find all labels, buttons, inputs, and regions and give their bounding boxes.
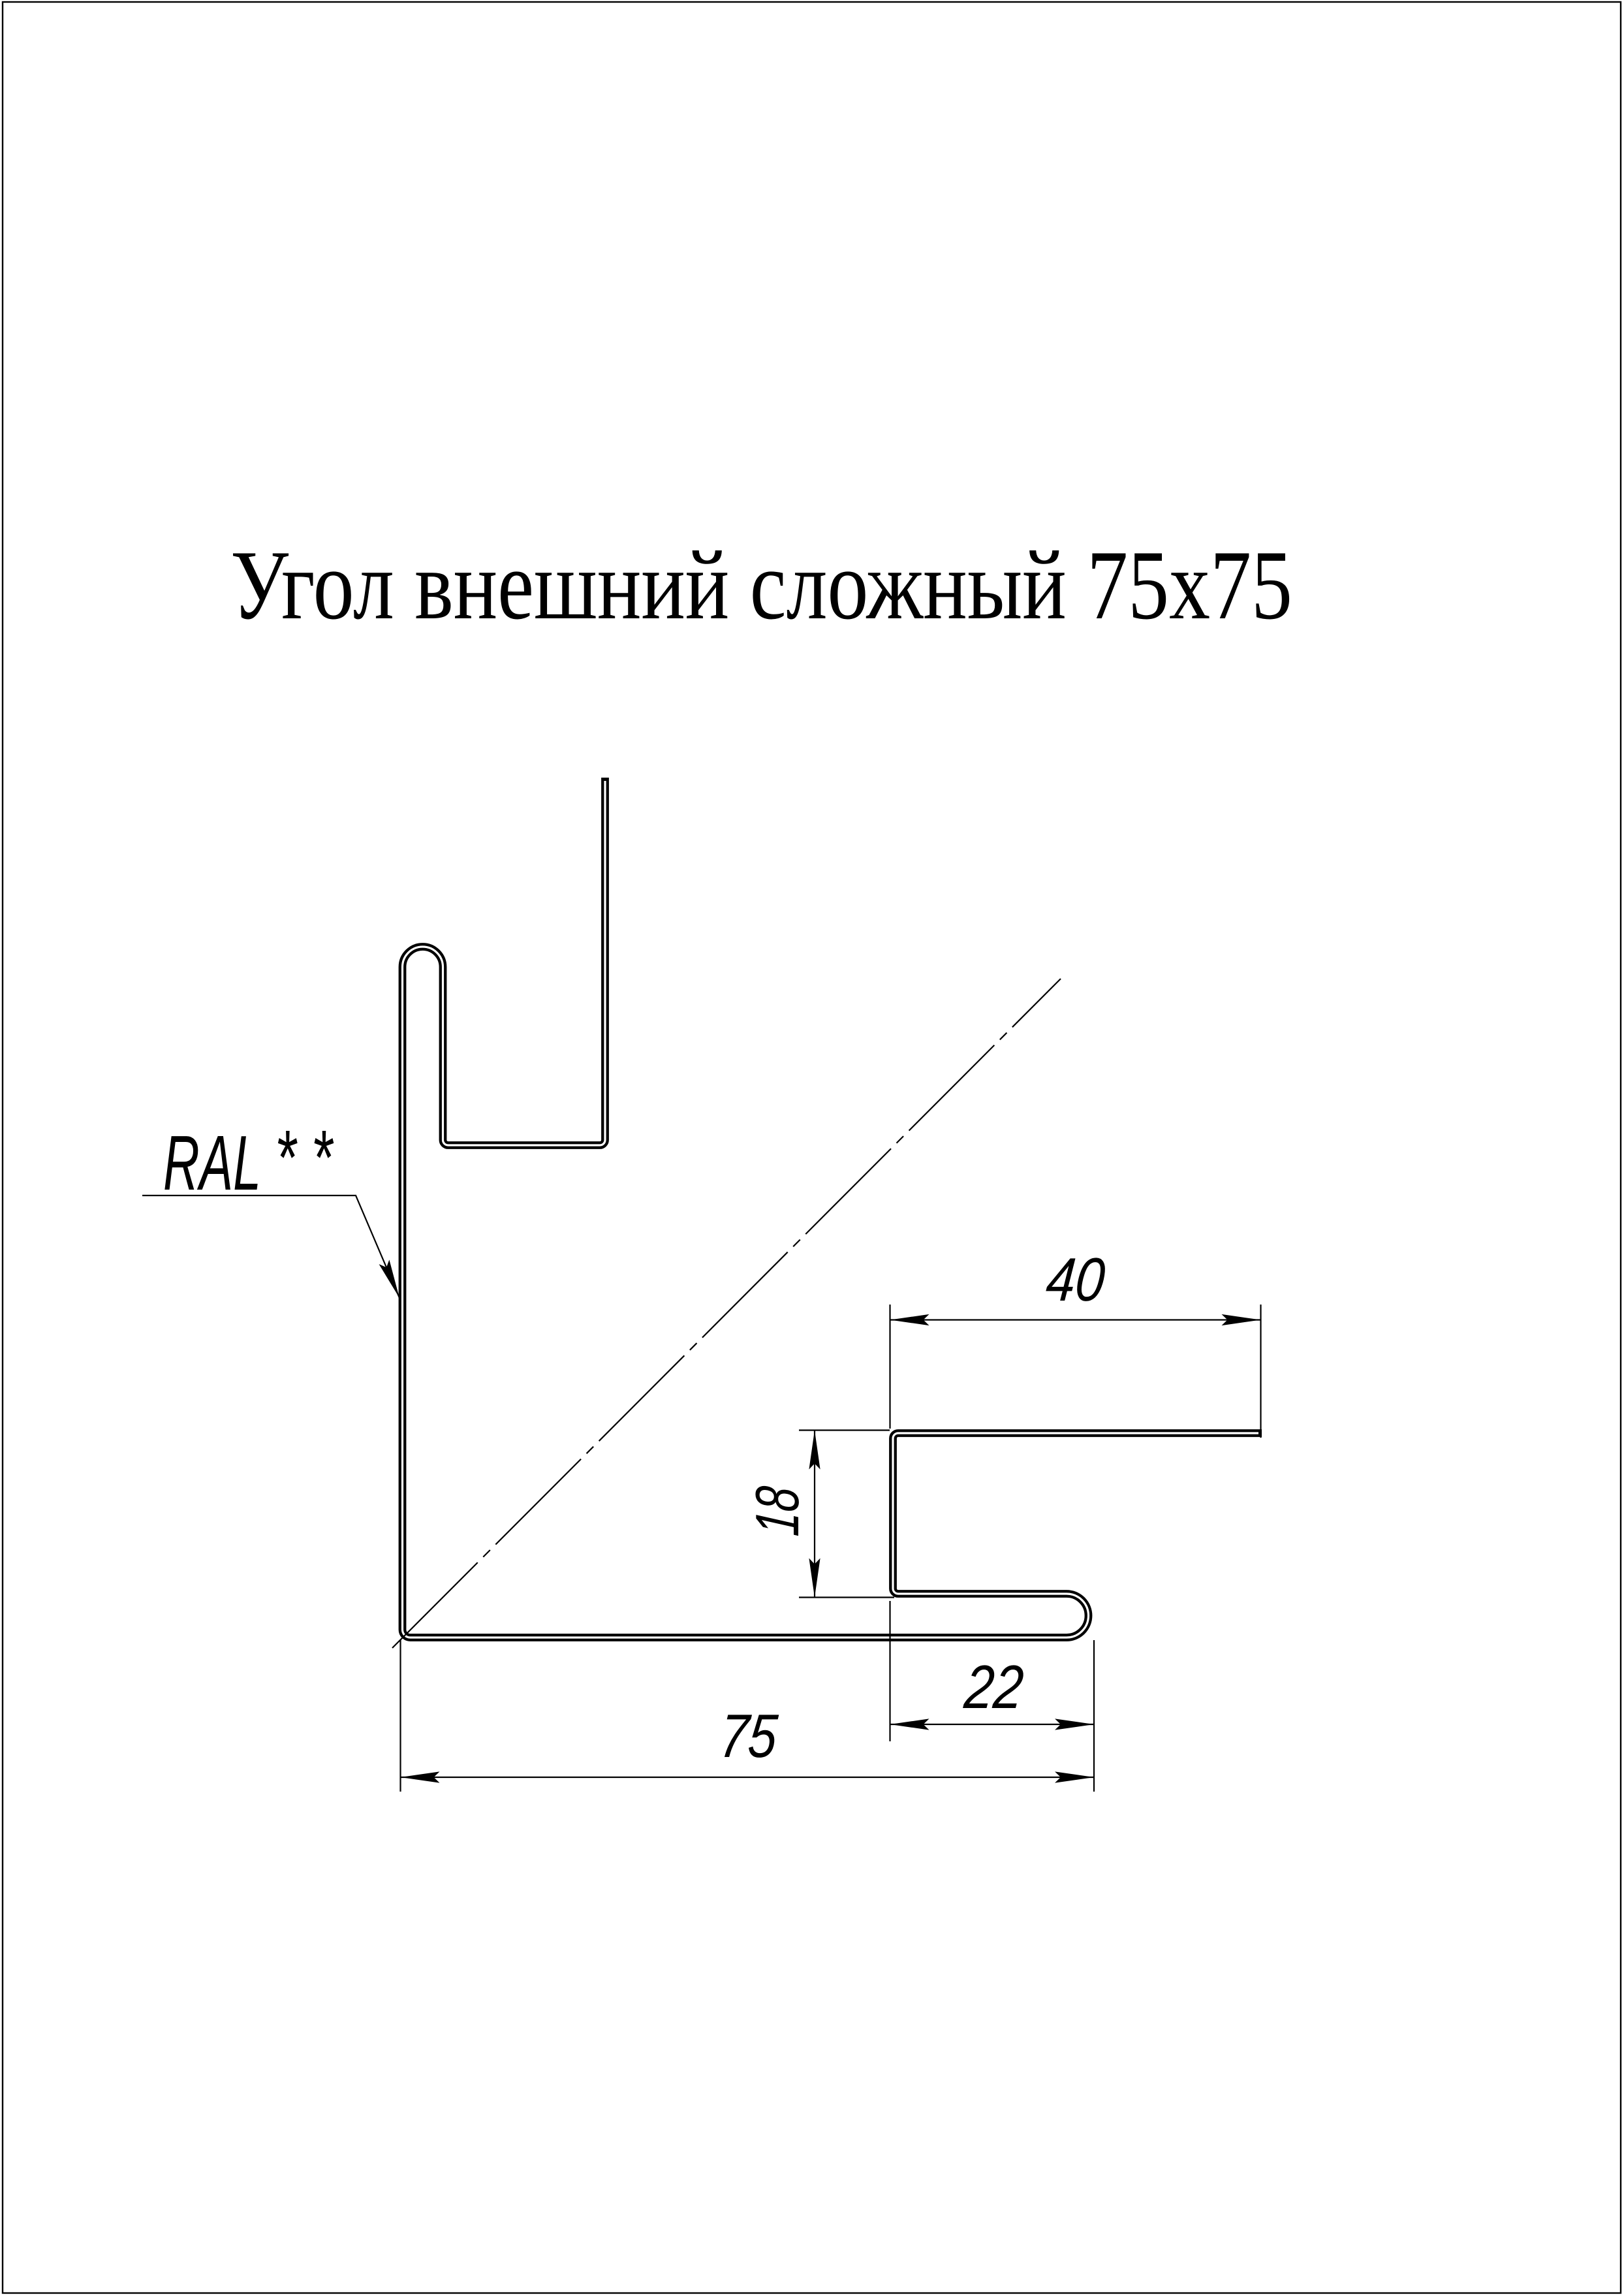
svg-text:75: 75	[717, 1701, 781, 1770]
svg-text:RAL: RAL	[163, 1120, 261, 1207]
svg-text:* *: * *	[275, 1115, 334, 1201]
svg-text:Угол внешний сложный 75х75: Угол внешний сложный 75х75	[230, 530, 1292, 640]
svg-text:40: 40	[1044, 1245, 1108, 1314]
svg-text:22: 22	[961, 1653, 1026, 1721]
svg-text:18: 18	[743, 1484, 811, 1538]
